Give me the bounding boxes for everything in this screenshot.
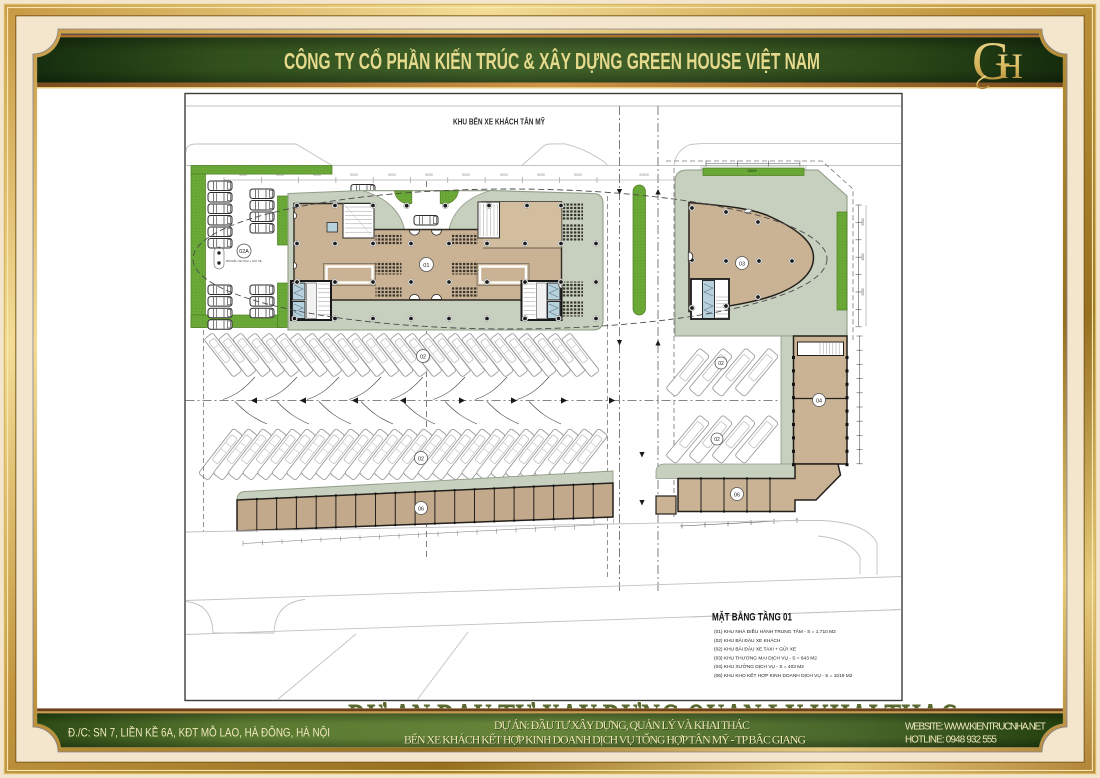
svg-text:(03) KHU THƯƠNG MẠI DỊCH VỤ -: (03) KHU THƯƠNG MẠI DỊCH VỤ - S = 643 M2 <box>714 655 817 661</box>
svg-text:28800: 28800 <box>747 169 757 173</box>
svg-text:9000: 9000 <box>388 173 396 177</box>
svg-text:WEBSITE: WWW.KIENTRUCNHA.NET: WEBSITE: WWW.KIENTRUCNHA.NET <box>905 722 1046 733</box>
svg-text:04: 04 <box>816 398 822 404</box>
svg-text:DỰ ÁN: ĐẦU TƯ XÂY DỰNG, QUẢN L: DỰ ÁN: ĐẦU TƯ XÂY DỰNG, QUẢN LÝ VÀ KHAI … <box>494 717 750 732</box>
svg-text:9000: 9000 <box>861 218 865 225</box>
svg-text:Đ./C: SN 7, LIỀN KỀ 6A, KĐT MỖ: Đ./C: SN 7, LIỀN KỀ 6A, KĐT MỖ LAO, HÀ Đ… <box>68 725 330 740</box>
svg-text:02: 02 <box>420 354 426 360</box>
svg-text:02: 02 <box>418 456 424 462</box>
svg-text:9000: 9000 <box>574 173 582 177</box>
svg-text:9000: 9000 <box>425 173 433 177</box>
svg-text:HOTLINE: 0948 932 555: HOTLINE: 0948 932 555 <box>905 735 998 746</box>
svg-text:H: H <box>997 46 1023 86</box>
svg-text:BÃI ĐẬU XE TAXI + GỬI XE: BÃI ĐẬU XE TAXI + GỬI XE <box>226 258 262 263</box>
svg-text:02: 02 <box>714 437 720 443</box>
svg-text:BẾN XE KHÁCH KẾT HỢP KINH DOAN: BẾN XE KHÁCH KẾT HỢP KINH DOANH DỊCH VỤ … <box>404 732 806 747</box>
svg-text:9000: 9000 <box>462 173 470 177</box>
svg-text:KHU BẾN XE KHÁCH TÂN MỸ: KHU BẾN XE KHÁCH TÂN MỸ <box>453 116 546 126</box>
svg-text:(02) KHU BÃI ĐẬU XE KHÁCH: (02) KHU BÃI ĐẬU XE KHÁCH <box>714 637 781 644</box>
svg-text:(06) KHU KHO KẾT HỢP KINH DOAN: (06) KHU KHO KẾT HỢP KINH DOANH DỊCH VỤ … <box>714 672 853 679</box>
svg-text:06: 06 <box>418 506 424 512</box>
svg-text:02A: 02A <box>239 249 249 255</box>
svg-text:9000: 9000 <box>537 173 545 177</box>
svg-text:03: 03 <box>739 261 745 267</box>
svg-text:(02) KHU BÃI ĐẬU XE TAXI + GỬI: (02) KHU BÃI ĐẬU XE TAXI + GỬI XE <box>714 646 796 653</box>
svg-text:(04) KHU XƯỞNG DỊCH VỤ - S = 4: (04) KHU XƯỞNG DỊCH VỤ - S = 403 M2 <box>714 663 804 670</box>
svg-text:MẶT BẰNG TẦNG 01: MẶT BẰNG TẦNG 01 <box>712 611 792 624</box>
svg-text:01: 01 <box>423 263 429 269</box>
svg-text:CÔNG TY CỔ PHẦN KIẾN TRÚC & XÂ: CÔNG TY CỔ PHẦN KIẾN TRÚC & XÂY DỰNG GRE… <box>284 47 820 74</box>
svg-text:9000: 9000 <box>861 288 865 295</box>
svg-text:02: 02 <box>718 361 724 367</box>
svg-text:(01) KHU NHÀ ĐIỀU HÀNH TRUNG T: (01) KHU NHÀ ĐIỀU HÀNH TRUNG TÂM - S = 1… <box>714 628 836 635</box>
svg-text:06: 06 <box>734 492 740 498</box>
svg-text:22500: 22500 <box>639 173 649 177</box>
svg-text:9000: 9000 <box>861 253 865 260</box>
svg-text:9000: 9000 <box>500 173 508 177</box>
svg-text:9000: 9000 <box>350 173 358 177</box>
